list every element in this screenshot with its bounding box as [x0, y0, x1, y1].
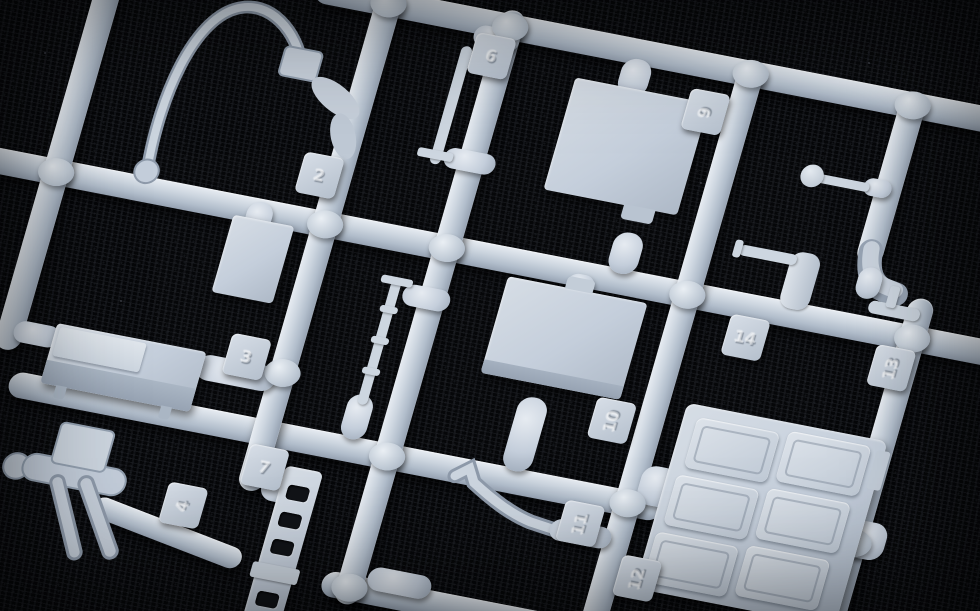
tag-number: 7	[257, 457, 273, 477]
ladder-slot	[277, 511, 303, 530]
seat-pad	[734, 545, 831, 611]
tag-number: 6	[483, 46, 499, 66]
bent-wire-grab-handle-part	[131, 0, 394, 221]
tag-number: 11	[568, 511, 593, 536]
curved-blade-part	[446, 466, 566, 529]
tag-number: 2	[311, 165, 327, 185]
tag-number: 3	[239, 347, 255, 367]
seat-pad	[754, 488, 851, 554]
seat-pad	[663, 474, 760, 540]
sprue-photo: 6 2 9 3 14 13 10 11 12 7 4	[0, 0, 980, 611]
ladder-slot	[285, 484, 311, 503]
tag-number: 4	[172, 498, 194, 512]
ladder-slot	[254, 590, 280, 609]
mount-bracket-part	[0, 413, 143, 559]
tag-number: 13	[879, 355, 904, 380]
tag-number: 12	[625, 566, 650, 591]
seat-pad	[683, 417, 780, 483]
ladder-slot	[269, 538, 295, 557]
tag-number: 9	[695, 105, 717, 119]
tag-number: 14	[732, 326, 759, 349]
tag-number: 10	[599, 408, 624, 433]
ladder-step	[249, 561, 301, 586]
seat-pad	[775, 431, 872, 497]
